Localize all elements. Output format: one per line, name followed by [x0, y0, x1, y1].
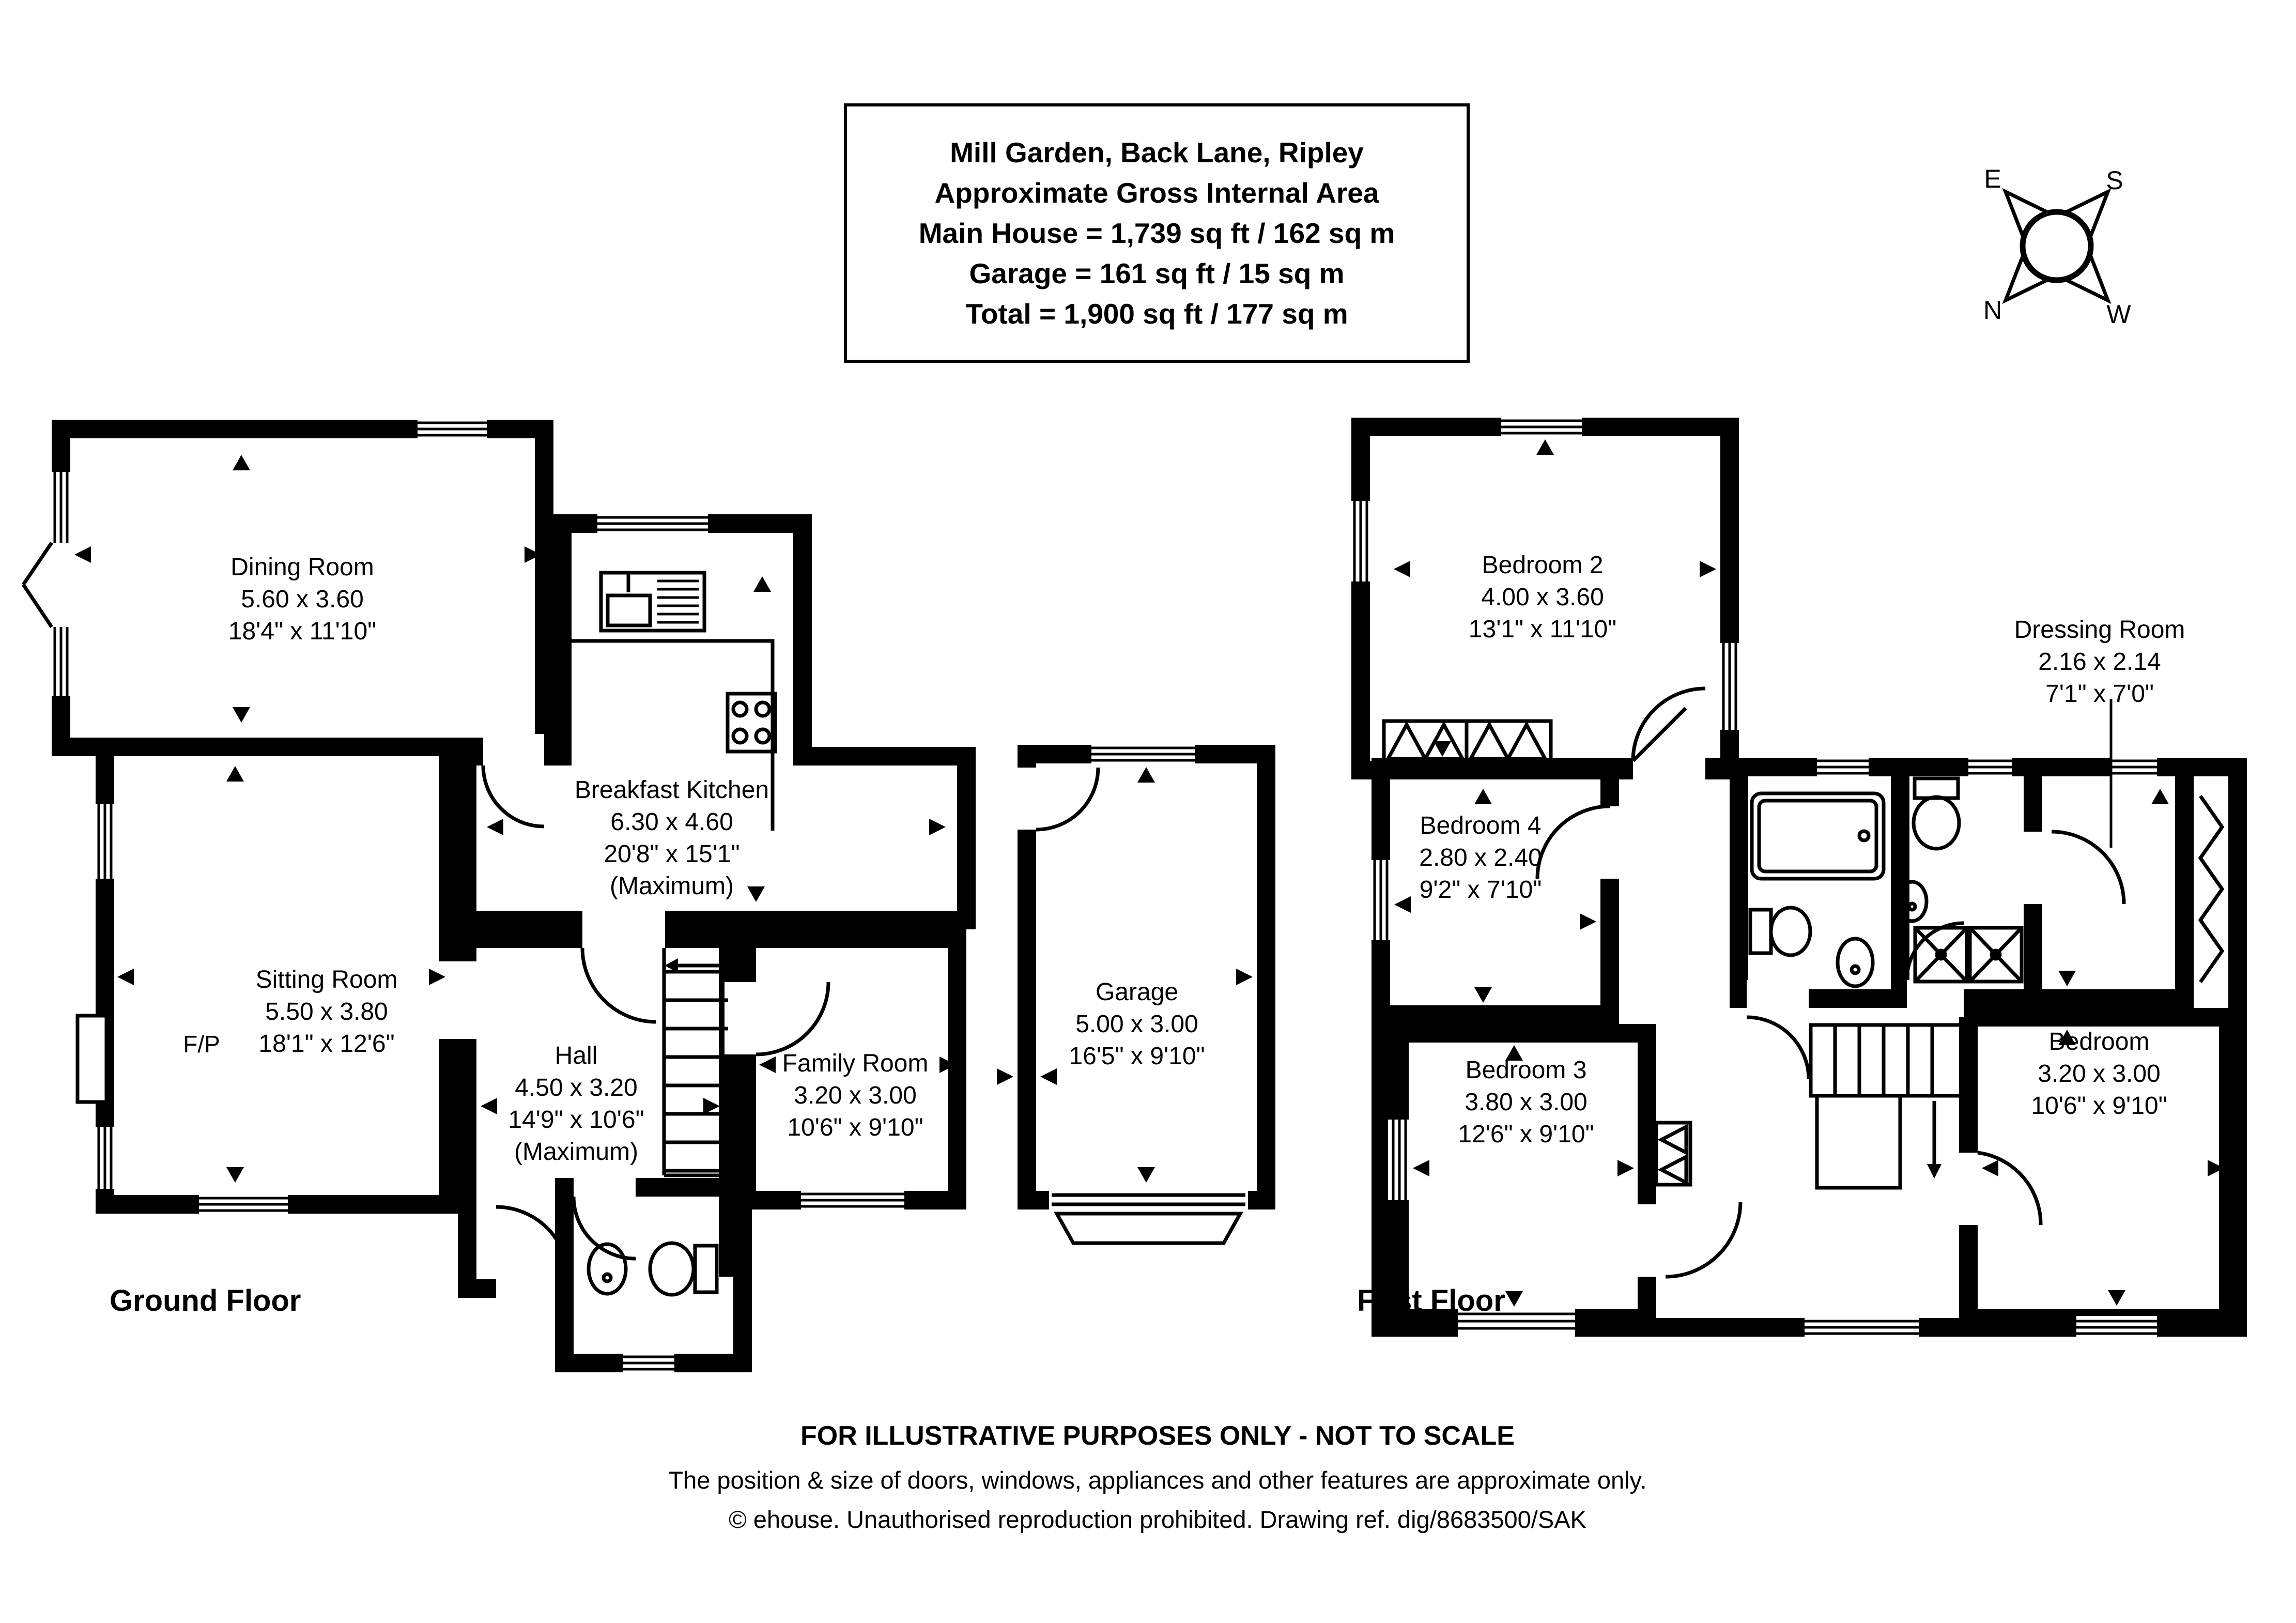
room-name: Principal Bedroom — [2011, 994, 2187, 1058]
room-label-family: Family Room 3.20 x 3.00 10'6" x 9'10" — [782, 1048, 929, 1144]
kitchen-sink — [601, 573, 704, 631]
room-dims-metric: 5.60 x 3.60 — [228, 584, 376, 616]
room-dims-imperial: 12'6" x 9'10" — [1458, 1119, 1594, 1151]
title-block: Mill Garden, Back Lane, Ripley Approxima… — [844, 103, 1470, 363]
footer-copyright: © ehouse. Unauthorised reproduction proh… — [729, 1505, 1586, 1534]
room-dims-imperial: 13'1" x 11'10" — [1469, 614, 1616, 646]
room-dims-metric: 3.20 x 3.00 — [782, 1080, 929, 1112]
cupboard-bedroom3 — [1656, 1123, 1690, 1185]
bath — [1752, 793, 1884, 879]
compass-east: E — [1984, 164, 2001, 194]
room-dims-imperial: 10'6" x 9'10" — [2011, 1090, 2187, 1122]
room-label-garage: Garage 5.00 x 3.00 16'5" x 9'10" — [1069, 976, 1205, 1073]
room-label-principal: Principal Bedroom 3.20 x 3.00 10'6" x 9'… — [2011, 994, 2187, 1122]
fireplace — [78, 1016, 106, 1102]
title-garage: Garage = 161 sq ft / 15 sq m — [969, 253, 1344, 294]
room-dims-metric: 2.80 x 2.40 — [1419, 842, 1542, 874]
footer-disclaimer: FOR ILLUSTRATIVE PURPOSES ONLY - NOT TO … — [800, 1420, 1515, 1451]
room-dims-imperial: 16'5" x 9'10" — [1069, 1040, 1205, 1073]
fireplace-label: F/P — [183, 1030, 220, 1058]
room-dims-imperial: 20'8" x 15'1" — [575, 838, 769, 870]
ground-floor-label: Ground Floor — [110, 1283, 301, 1318]
wardrobe-dressing — [2200, 796, 2222, 982]
room-name: Sitting Room — [256, 964, 398, 996]
room-label-dressing: Dressing Room 2.16 x 2.14 7'1" x 7'0" — [2014, 614, 2185, 710]
title-main-house: Main House = 1,739 sq ft / 162 sq m — [919, 213, 1395, 253]
room-name: Family Room — [782, 1048, 929, 1080]
compass-north: N — [1983, 295, 2002, 325]
compass-rose — [2006, 192, 2108, 300]
room-dims-imperial: 18'1" x 12'6" — [256, 1028, 398, 1060]
room-dims-metric: 4.00 x 3.60 — [1469, 581, 1616, 614]
shower-tray — [1970, 928, 2022, 982]
room-name: Bedroom 2 — [1469, 549, 1616, 581]
bathroom-basin — [1838, 939, 1873, 986]
shower-tray — [1915, 928, 1967, 982]
room-dims-imperial: 7'1" x 7'0" — [2014, 678, 2185, 710]
room-dims-metric: 3.80 x 3.00 — [1458, 1086, 1594, 1119]
first-floor-label: First Floor — [1357, 1283, 1505, 1318]
room-name: Dressing Room — [2014, 614, 2185, 646]
room-label-hall: Hall 4.50 x 3.20 14'9" x 10'6" (Maximum) — [508, 1040, 644, 1168]
title-address: Mill Garden, Back Lane, Ripley — [950, 132, 1364, 173]
room-dims-imperial: 10'6" x 9'10" — [782, 1112, 929, 1144]
floorplan-page: Mill Garden, Back Lane, Ripley Approxima… — [0, 0, 2296, 1623]
wardrobe-bedroom2 — [1384, 721, 1551, 761]
room-dims-metric: 3.20 x 3.00 — [2011, 1058, 2187, 1090]
room-dims-metric: 6.30 x 4.60 — [575, 806, 769, 838]
room-dims-metric: 5.00 x 3.00 — [1069, 1008, 1205, 1040]
bathroom-toilet — [1750, 908, 1810, 955]
room-label-bedroom2: Bedroom 2 4.00 x 3.60 13'1" x 11'10" — [1469, 549, 1616, 646]
room-name: Dining Room — [228, 552, 376, 584]
room-note: (Maximum) — [575, 870, 769, 902]
room-name: Garage — [1069, 976, 1205, 1008]
room-name: Hall — [508, 1040, 644, 1072]
compass-west: W — [2106, 299, 2131, 329]
room-dims-metric: 2.16 x 2.14 — [2014, 646, 2185, 678]
room-label-bedroom4: Bedroom 4 2.80 x 2.40 9'2" x 7'10" — [1419, 810, 1542, 906]
room-note: (Maximum) — [508, 1136, 644, 1168]
room-label-dining: Dining Room 5.60 x 3.60 18'4" x 11'10" — [228, 552, 376, 648]
room-dims-metric: 4.50 x 3.20 — [508, 1072, 644, 1104]
room-label-sitting: Sitting Room 5.50 x 3.80 18'1" x 12'6" — [256, 964, 398, 1060]
room-dims-imperial: 14'9" x 10'6" — [508, 1104, 644, 1136]
room-label-breakfast-kitchen: Breakfast Kitchen 6.30 x 4.60 20'8" x 15… — [575, 774, 769, 902]
room-name: Breakfast Kitchen — [575, 774, 769, 806]
title-subtitle: Approximate Gross Internal Area — [935, 173, 1379, 213]
compass-south: S — [2106, 165, 2123, 195]
wc-toilet — [1914, 778, 1959, 849]
title-total: Total = 1,900 sq ft / 177 sq m — [965, 294, 1348, 334]
room-name: Bedroom 3 — [1458, 1054, 1594, 1086]
staircase-ground — [664, 948, 728, 1175]
room-label-bedroom3: Bedroom 3 3.80 x 3.00 12'6" x 9'10" — [1458, 1054, 1594, 1151]
room-name: Bedroom 4 — [1419, 810, 1542, 842]
room-dims-imperial: 9'2" x 7'10" — [1419, 874, 1542, 906]
room-dims-metric: 5.50 x 3.80 — [256, 996, 398, 1028]
staircase-first — [1811, 1025, 1968, 1188]
footer-approximate: The position & size of doors, windows, a… — [668, 1466, 1646, 1494]
room-dims-imperial: 18'4" x 11'10" — [228, 616, 376, 648]
